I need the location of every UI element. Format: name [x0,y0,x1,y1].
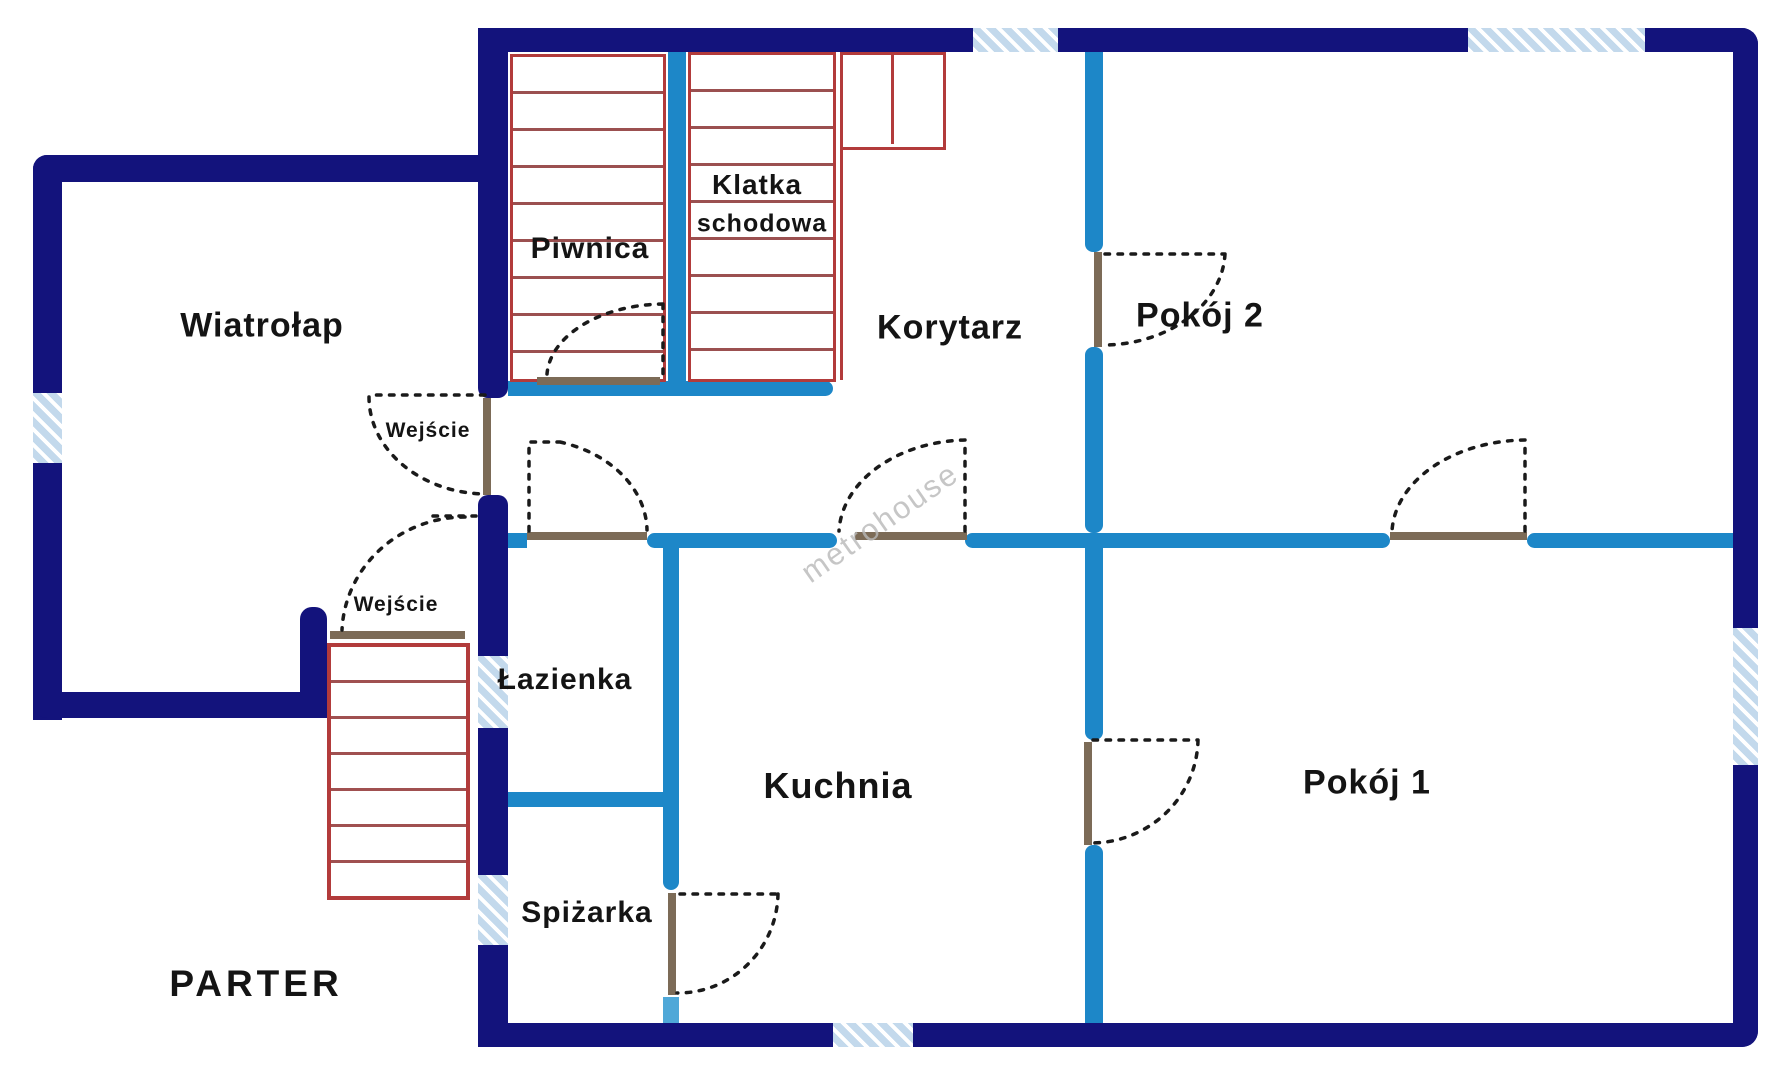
door-arc-pokoj1 [1090,740,1198,843]
room-label-wiatrolap: Wiatrołap [180,307,344,346]
room-label-piwnica: Piwnica [531,232,650,266]
room-label-korytarz: Korytarz [877,309,1023,348]
entrance-label-upper: Wejście [386,419,471,443]
room-label-kuchnia: Kuchnia [763,765,912,807]
room-label-pokoj2: Pokój 2 [1136,297,1264,336]
room-label-klatka-line1: Klatka [712,169,802,201]
door-arc-wejscie-upper [369,395,486,494]
room-label-spizarka: Spiżarka [521,896,652,930]
door-arc-spizarka [677,894,778,993]
room-label-klatka-line2: schodowa [697,210,827,239]
floor-title: PARTER [169,963,342,1005]
room-label-lazienka: Łazienka [498,663,633,697]
room-label-pokoj1: Pokój 1 [1303,764,1431,803]
entrance-label-lower: Wejście [354,593,439,617]
door-arc-pokoj2-pokoj1 [1392,440,1525,531]
door-arc-lazienka [529,442,647,531]
door-arc-piwnica [547,304,663,374]
floor-plan: Wiatrołap Piwnica Klatka schodowa Koryta… [0,0,1772,1080]
